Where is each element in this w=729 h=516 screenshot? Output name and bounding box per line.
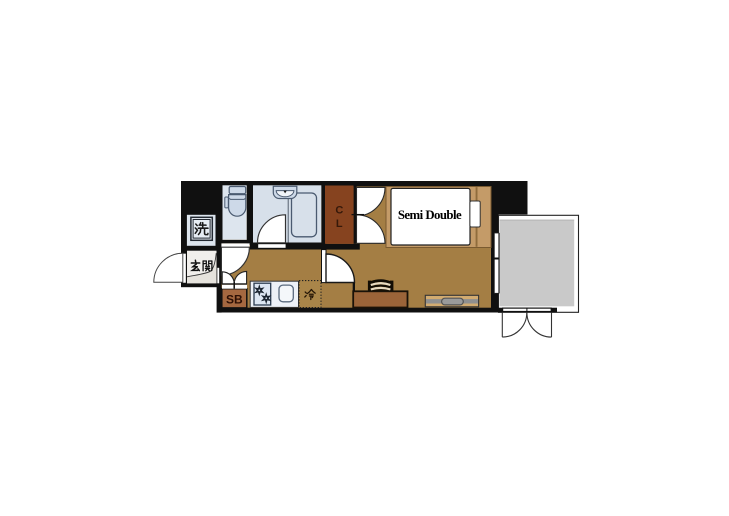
svg-text:Semi Double: Semi Double bbox=[398, 208, 462, 222]
svg-text:C: C bbox=[335, 205, 343, 217]
svg-text:SB: SB bbox=[226, 293, 243, 307]
svg-text:L: L bbox=[336, 218, 343, 230]
